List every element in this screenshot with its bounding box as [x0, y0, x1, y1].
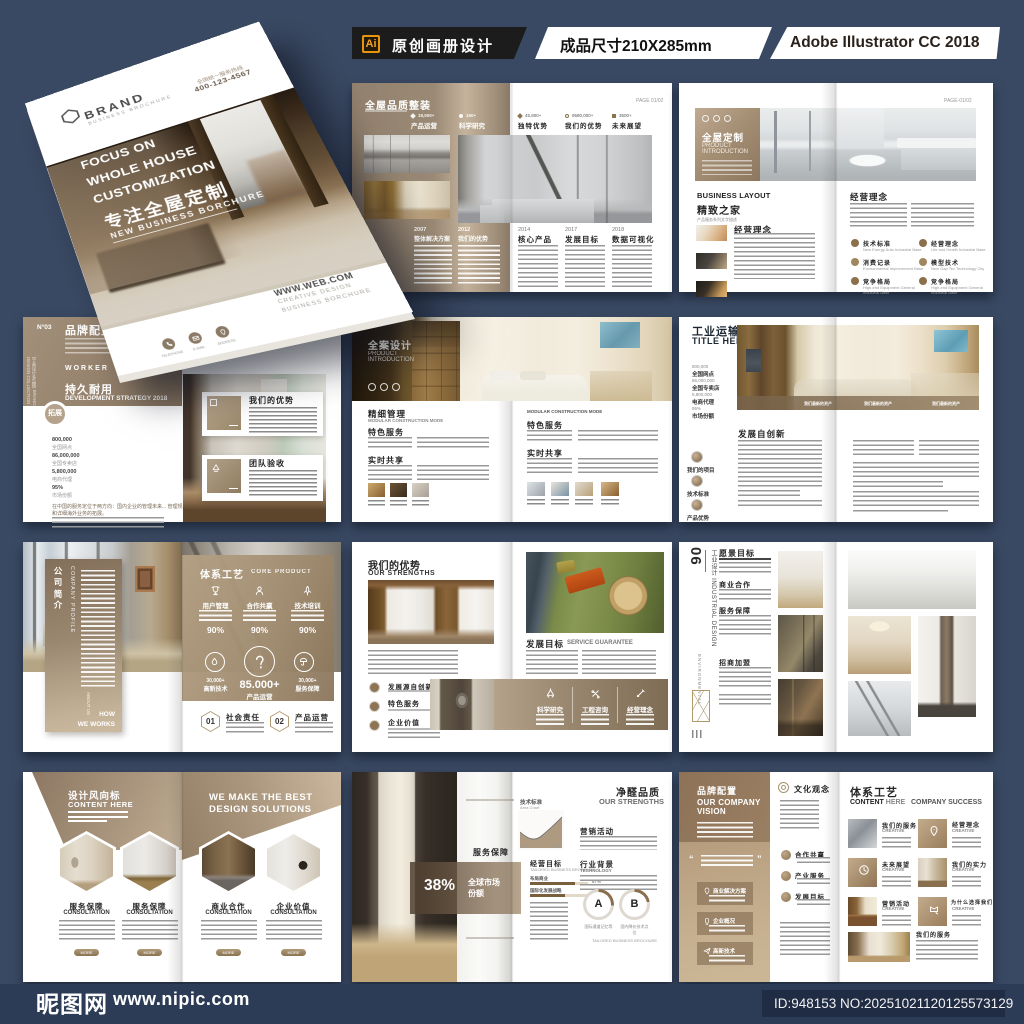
svg-text:2018: 2018: [554, 845, 562, 849]
svg-text:2015: 2015: [521, 845, 529, 849]
